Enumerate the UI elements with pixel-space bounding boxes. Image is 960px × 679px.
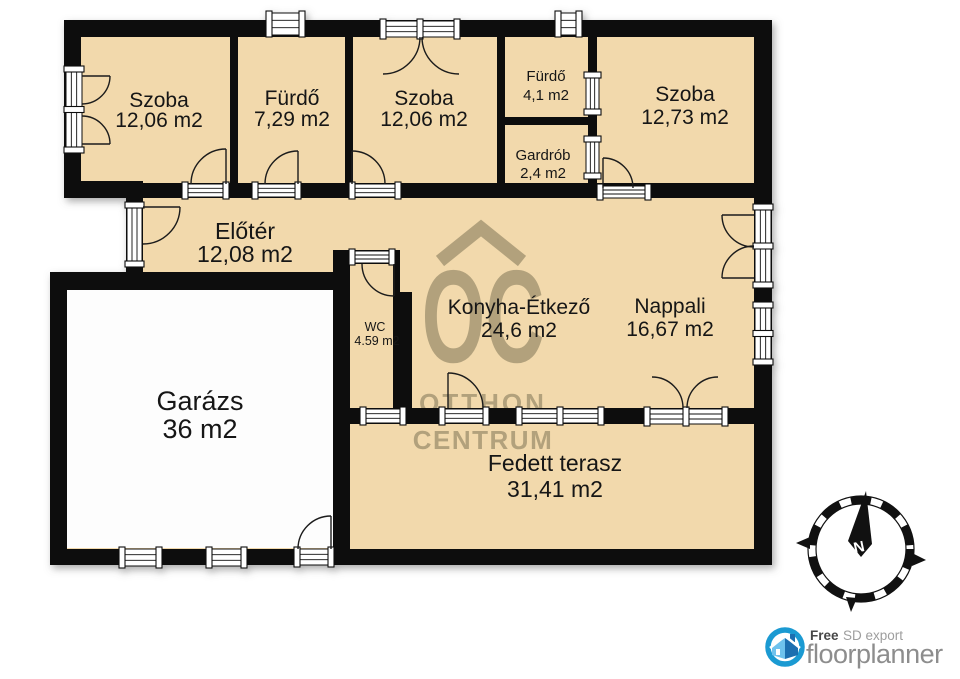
room-label-szoba1-area: 12,06 m2 [115,109,203,132]
wall [754,20,772,565]
wall [50,272,67,565]
interior-window-gardrob [584,136,601,179]
room-label-nappali-area: 16,67 m2 [626,318,714,341]
compass-tick-east [912,553,926,566]
room-label-konyha-name: Konyha-Étkező [448,296,590,319]
terrace-door-konyha [439,407,489,425]
door-szoba2 [349,182,401,199]
room-label-terasz-area: 31,41 m2 [507,476,603,502]
wall [497,37,505,183]
door-furdo1 [252,182,301,199]
french-door-nappali-terasz [644,407,728,426]
wc-window [360,407,406,425]
floorplan-page: OC OTTHON CENTRUM Szoba 12,06 m2 Fürdő 7… [0,0,960,679]
french-window-szoba1-left [64,66,84,153]
room-label-szoba3-area: 12,73 m2 [641,106,729,129]
french-door-nappali-right [753,204,773,288]
room-label-wc-area: 4.59 m2 [354,334,399,348]
room-label-gardrob-name: Gardrób [515,147,570,164]
wc-door [349,249,395,265]
room-label-terasz-name: Fedett terasz [488,450,622,476]
window-garage-2 [206,547,247,568]
entry-door [125,202,144,267]
window-konyha-terasz [516,407,604,425]
window-furdo2-top [555,11,582,37]
room-label-furdo1-name: Fürdő [265,87,320,110]
french-door-szoba2-top [380,19,460,39]
room-label-szoba3-name: Szoba [655,83,715,106]
window-garage-1 [119,547,162,568]
room-label-szoba2-name: Szoba [394,87,454,110]
window-furdo1-top [266,11,305,37]
room-label-nappali-name: Nappali [634,295,705,318]
room-label-eloter-area: 12,08 m2 [197,241,293,267]
room-label-furdo2-area: 4,1 m2 [523,87,569,104]
interior-window-furdo2 [584,72,601,115]
wall [50,272,350,290]
room-label-furdo2-name: Fürdő [526,68,565,85]
room-label-furdo1-area: 7,29 m2 [254,108,330,131]
door-szoba3 [597,184,651,200]
logo-brand-label: floorplanner [806,639,943,669]
floorplan: OC OTTHON CENTRUM Szoba 12,06 m2 Fürdő 7… [50,11,773,568]
wall [505,117,588,125]
room-label-konyha-area: 24,6 m2 [481,319,557,342]
compass-tick-west [796,537,810,549]
room-label-wc-name: WC [365,320,386,334]
garage-door [294,547,334,567]
room-label-szoba2-area: 12,06 m2 [380,108,468,131]
door-szoba1 [182,182,229,199]
compass-tick-south [846,597,857,612]
room-label-garazs-name: Garázs [156,386,243,416]
compass: N [796,491,926,612]
wall [230,37,238,183]
floorplanner-logo: Free SD export floorplanner [768,628,943,669]
wall [333,250,350,549]
window-nappali-right [753,302,773,365]
floorplan-svg: OC OTTHON CENTRUM Szoba 12,06 m2 Fürdő 7… [0,0,960,679]
wall [393,292,412,410]
room-label-garazs-area: 36 m2 [162,414,237,444]
room-label-gardrob-area: 2,4 m2 [520,165,566,182]
